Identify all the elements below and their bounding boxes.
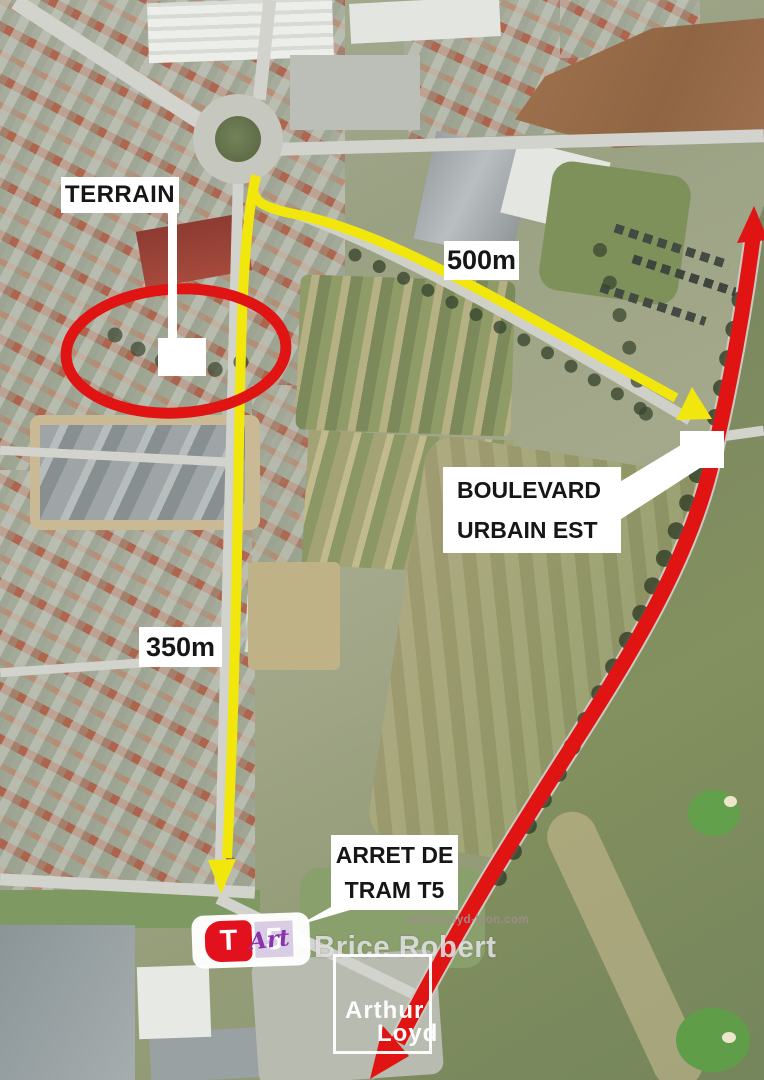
tram-stop-label-line2: TRAM T5 xyxy=(345,873,445,908)
distance-label-350m: 350m xyxy=(139,627,222,667)
boulevard-urbain-est-label: BOULEVARD URBAIN EST xyxy=(443,467,621,553)
watermark-script-fragment: Art xyxy=(248,924,291,955)
tram-stop-label-line1: ARRET DE xyxy=(336,838,454,873)
tram-line-t-icon: T xyxy=(204,920,252,963)
boulevard-label-line1: BOULEVARD xyxy=(457,470,601,510)
boulevard-label-line2: URBAIN EST xyxy=(457,510,598,550)
logo-line2: Loyd xyxy=(377,1020,438,1048)
tram-stop-label: ARRET DE TRAM T5 xyxy=(331,835,458,910)
tram-t5-badge: T 5 Art xyxy=(191,912,311,969)
distance-label-500m: 500m xyxy=(444,241,519,280)
annotation-layer xyxy=(0,0,764,1080)
arthur-loyd-logo: Arthur Loyd xyxy=(333,954,432,1054)
terrain-label: TERRAIN xyxy=(61,177,179,213)
boulevard-marker-square xyxy=(680,431,724,468)
watermark-website: arthur-loyd-lyon.com xyxy=(406,914,529,926)
route-500m-arrowhead xyxy=(676,387,712,420)
route-350m-arrowhead xyxy=(208,859,236,894)
map-canvas: TERRAIN 500m 350m BOULEVARD URBAIN EST A… xyxy=(0,0,764,1080)
terrain-callout-line xyxy=(168,209,177,344)
terrain-marker-square xyxy=(158,338,206,376)
boulevard-red-arrowhead-north xyxy=(737,206,764,243)
route-350m-line xyxy=(227,176,256,858)
